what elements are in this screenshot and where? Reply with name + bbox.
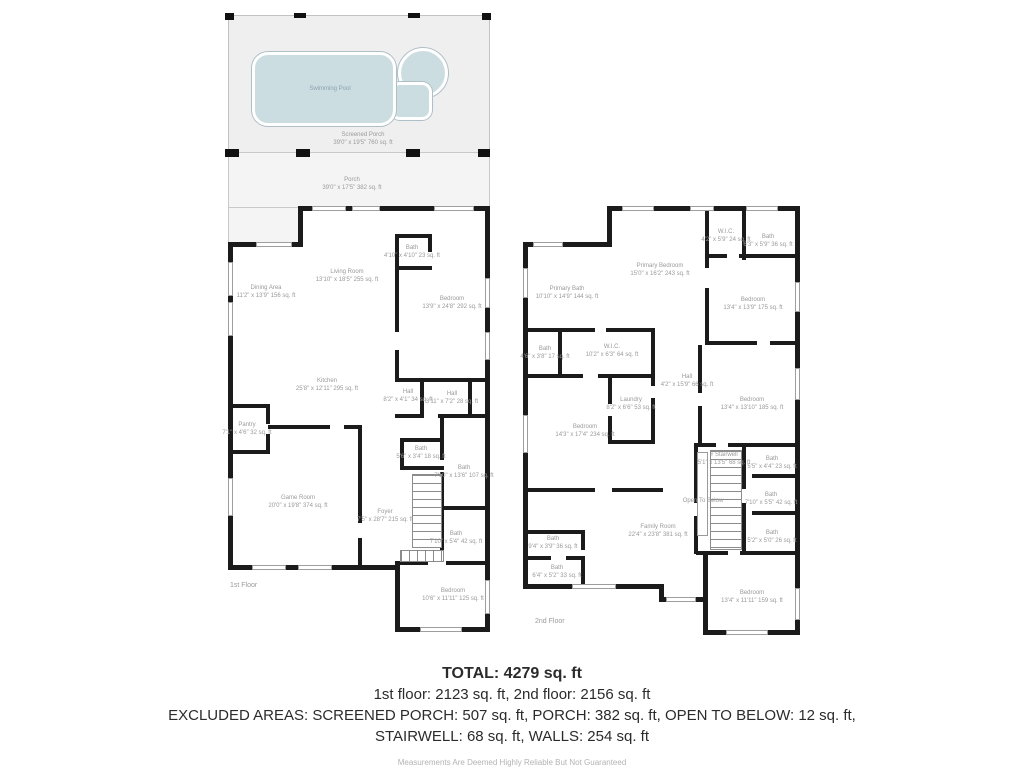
wall bbox=[770, 341, 800, 345]
window bbox=[533, 242, 563, 247]
room-name: Bath bbox=[434, 464, 493, 472]
porch-area-notch bbox=[228, 208, 304, 244]
room-name: Porch bbox=[322, 176, 381, 184]
window bbox=[256, 242, 292, 247]
wall bbox=[523, 374, 583, 378]
room-dims: 7'1" x 4'6" 32 sq. ft bbox=[222, 429, 271, 437]
room-dims: 4'6" x 3'8" 17 sq. ft bbox=[520, 353, 569, 361]
window bbox=[228, 478, 233, 516]
room-label-bedroom: Bedroom13'4" x 13'9" 175 sq. ft bbox=[723, 296, 782, 312]
room-dims: 10'6" x 11'11" 125 sq. ft bbox=[422, 595, 484, 603]
room-label-foyer: Foyer7'5" x 28'7" 215 sq. ft bbox=[357, 508, 413, 524]
room-dims: 10'10" x 14'9" 144 sq. ft bbox=[536, 293, 599, 301]
wall bbox=[795, 206, 800, 635]
room-dims: 5'2" x 5'0" 26 sq. ft bbox=[747, 537, 796, 545]
room-label-bath: Bath7'10" x 5'4" 42 sq. ft bbox=[430, 530, 483, 546]
room-dims: 7'10" x 5'5" 42 sq. ft bbox=[745, 499, 798, 507]
room-name: Pantry bbox=[222, 421, 271, 429]
porch-post bbox=[482, 13, 491, 20]
staircase-landing bbox=[400, 550, 444, 562]
room-dims: 11'2" x 13'9" 156 sq. ft bbox=[237, 292, 296, 300]
room-label-bedroom: Bedroom14'3" x 17'4" 234 sq. ft bbox=[555, 423, 614, 439]
room-dims: 3'11" x 7'2" 28 sq. ft bbox=[426, 398, 478, 406]
wall bbox=[395, 234, 432, 238]
room-label-bath: Bath6'3" x 5'9" 36 sq. ft bbox=[743, 233, 792, 249]
window bbox=[746, 206, 778, 211]
wall bbox=[728, 443, 800, 447]
room-dims: 39'0" x 17'5" 382 sq. ft bbox=[322, 184, 381, 192]
room-name: Bedroom bbox=[721, 589, 783, 597]
wall bbox=[446, 561, 490, 565]
room-name: Bath bbox=[396, 445, 445, 453]
wall bbox=[523, 488, 595, 492]
room-dims: 7'10" x 5'4" 42 sq. ft bbox=[430, 538, 483, 546]
room-label-bath: Bath9'4" x 3'9" 36 sq. ft bbox=[528, 535, 577, 551]
window bbox=[795, 282, 800, 312]
wall bbox=[698, 406, 702, 446]
room-label-dining-area: Dining Area11'2" x 13'9" 156 sq. ft bbox=[237, 284, 296, 300]
porch-post bbox=[225, 149, 239, 157]
wall bbox=[395, 414, 423, 418]
room-label-bath: Bath4'10" x 4'10" 23 sq. ft bbox=[384, 244, 440, 260]
porch-post bbox=[225, 13, 234, 20]
room-label-living-room: Living Room13'10" x 18'5" 255 sq. ft bbox=[316, 268, 379, 284]
room-name: ↑ Stairwell bbox=[698, 451, 751, 459]
room-label-wic: W.I.C.10'2" x 6'3" 64 sq. ft bbox=[586, 343, 639, 359]
room-name: Bath bbox=[747, 529, 796, 537]
excluded-areas-line2: STAIRWELL: 68 sq. ft, WALLS: 254 sq. ft bbox=[0, 728, 1024, 746]
wall bbox=[705, 341, 757, 345]
room-name: W.I.C. bbox=[586, 343, 639, 351]
room-label-bath: Bath5'6" x 3'4" 18 sq. ft bbox=[396, 445, 445, 461]
room-name: Hall bbox=[426, 390, 478, 398]
room-dims: 4'10" x 4'10" 23 sq. ft bbox=[384, 252, 440, 260]
room-name: Bath bbox=[520, 345, 569, 353]
room-name: Primary Bath bbox=[536, 285, 599, 293]
window bbox=[690, 206, 714, 211]
wall bbox=[612, 488, 663, 492]
window bbox=[485, 332, 490, 360]
window bbox=[352, 206, 380, 211]
room-name: Foyer bbox=[357, 508, 413, 516]
window bbox=[228, 302, 233, 336]
room-label-bath: Bath4'6" x 3'8" 17 sq. ft bbox=[520, 345, 569, 361]
room-label-family-room: Family Room22'4" x 23'8" 381 sq. ft bbox=[628, 523, 687, 539]
room-dims: 22'4" x 23'8" 381 sq. ft bbox=[628, 531, 687, 539]
wall bbox=[752, 511, 798, 515]
wall bbox=[400, 438, 444, 442]
room-name: Open To Below bbox=[683, 497, 724, 505]
wall bbox=[298, 206, 303, 247]
room-label-bath: Bath7'10" x 13'6" 107 sq. ft bbox=[434, 464, 493, 480]
room-label-bath: Bath5'2" x 5'0" 26 sq. ft bbox=[747, 529, 796, 545]
room-label-primary-bedroom: Primary Bedroom15'0" x 16'2" 243 sq. ft bbox=[630, 262, 689, 278]
wall bbox=[607, 206, 612, 247]
room-dims: 13'9" x 24'8" 292 sq. ft bbox=[422, 303, 481, 311]
room-label-stairwell: ↑ Stairwell5'1" x 13'5" 68 sq. ft bbox=[698, 451, 751, 467]
up-arrow-icon: ↑ bbox=[710, 452, 713, 458]
screened-porch-label: Screened Porch 39'0" x 19'5" 760 sq. ft bbox=[333, 131, 392, 147]
room-name: Bedroom bbox=[422, 587, 484, 595]
room-dims: 10'2" x 6'3" 64 sq. ft bbox=[586, 351, 639, 359]
room-dims: 5'5" x 4'4" 23 sq. ft bbox=[747, 463, 796, 471]
porch-label: Porch 39'0" x 17'5" 382 sq. ft bbox=[322, 176, 381, 192]
room-label-kitchen: Kitchen25'8" x 12'11" 295 sq. ft bbox=[296, 377, 358, 393]
porch-post bbox=[406, 149, 420, 157]
room-label-pantry: Pantry7'1" x 4'6" 32 sq. ft bbox=[222, 421, 271, 437]
room-name: Bath bbox=[747, 455, 796, 463]
window bbox=[666, 597, 696, 602]
room-name: Hall bbox=[661, 373, 714, 381]
window bbox=[523, 268, 528, 298]
wall bbox=[696, 551, 728, 555]
window bbox=[795, 368, 800, 400]
window bbox=[726, 630, 768, 635]
room-label-bedroom: Bedroom13'9" x 24'8" 292 sq. ft bbox=[422, 295, 481, 311]
window bbox=[485, 278, 490, 308]
room-label-hall: Hall4'2" x 15'9" 66 sq. ft bbox=[661, 373, 714, 389]
room-dims: 25'8" x 12'11" 295 sq. ft bbox=[296, 385, 358, 393]
room-name: Bath bbox=[745, 491, 798, 499]
stairwell-name: Stairwell bbox=[715, 452, 738, 458]
wall bbox=[752, 474, 798, 478]
room-label-bath: Bath5'5" x 4'4" 23 sq. ft bbox=[747, 455, 796, 471]
wall bbox=[696, 443, 716, 447]
room-dims: 7'5" x 28'7" 215 sq. ft bbox=[357, 516, 413, 524]
porch-post bbox=[408, 13, 420, 18]
wall bbox=[228, 450, 270, 454]
room-name: Bath bbox=[384, 244, 440, 252]
room-name: Family Room bbox=[628, 523, 687, 531]
room-dims: 13'4" x 11'11" 159 sq. ft bbox=[721, 597, 783, 605]
wall bbox=[358, 538, 362, 568]
room-name: Bath bbox=[532, 564, 581, 572]
wall bbox=[705, 288, 709, 345]
wall bbox=[485, 206, 490, 632]
wall bbox=[598, 374, 655, 378]
room-name: Screened Porch bbox=[333, 131, 392, 139]
wall bbox=[344, 425, 362, 429]
floor1-caption: 1st Floor bbox=[230, 582, 257, 589]
room-name: Primary Bedroom bbox=[630, 262, 689, 270]
room-name: Bedroom bbox=[721, 396, 784, 404]
room-name: Laundry bbox=[606, 396, 655, 404]
porch-post bbox=[296, 149, 310, 157]
room-label-bedroom: Bedroom13'4" x 13'10" 185 sq. ft bbox=[721, 396, 784, 412]
wall bbox=[703, 553, 708, 635]
wall bbox=[395, 378, 490, 382]
room-dims: 5'6" x 3'4" 18 sq. ft bbox=[396, 453, 445, 461]
room-label-hall: Hall3'11" x 7'2" 28 sq. ft bbox=[426, 390, 478, 406]
room-dims: 6'3" x 5'9" 36 sq. ft bbox=[743, 241, 792, 249]
window bbox=[312, 206, 346, 211]
room-dims: 39'0" x 19'5" 760 sq. ft bbox=[333, 139, 392, 147]
room-name: Game Room bbox=[268, 494, 327, 502]
wall bbox=[739, 254, 800, 258]
window bbox=[228, 262, 233, 296]
floor-plan-sheet: Swimming Pool Screened Porch 39'0" x 19'… bbox=[0, 0, 1024, 768]
porch-post bbox=[478, 149, 490, 157]
room-name: Dining Area bbox=[237, 284, 296, 292]
window bbox=[298, 565, 332, 570]
window bbox=[795, 588, 800, 620]
porch-post bbox=[294, 13, 306, 18]
disclaimer: Measurements Are Deemed Highly Reliable … bbox=[0, 758, 1024, 767]
room-name: Living Room bbox=[316, 268, 379, 276]
room-dims: 8'2" x 6'6" 53 sq. ft bbox=[606, 404, 655, 412]
wall bbox=[523, 556, 551, 560]
window bbox=[572, 584, 616, 589]
area-summary: TOTAL: 4279 sq. ft 1st floor: 2123 sq. f… bbox=[0, 664, 1024, 767]
wall bbox=[438, 414, 490, 418]
wall bbox=[395, 266, 432, 270]
room-name: Kitchen bbox=[296, 377, 358, 385]
swimming-pool-lobe bbox=[390, 82, 432, 120]
wall bbox=[608, 440, 655, 444]
room-name: Bath bbox=[528, 535, 577, 543]
window bbox=[523, 415, 528, 453]
floor-areas: 1st floor: 2123 sq. ft, 2nd floor: 2156 … bbox=[0, 686, 1024, 704]
room-dims: 6'4" x 5'2" 33 sq. ft bbox=[532, 572, 581, 580]
wall bbox=[442, 506, 490, 510]
room-dims: 9'4" x 3'9" 36 sq. ft bbox=[528, 543, 577, 551]
room-label-laundry: Laundry8'2" x 6'6" 53 sq. ft bbox=[606, 396, 655, 412]
window bbox=[485, 580, 490, 614]
room-dims: 14'3" x 17'4" 234 sq. ft bbox=[555, 431, 614, 439]
pool-label: Swimming Pool bbox=[309, 85, 350, 93]
room-dims: 7'10" x 13'6" 107 sq. ft bbox=[434, 472, 493, 480]
wall bbox=[395, 350, 399, 380]
window bbox=[434, 206, 474, 211]
wall bbox=[268, 425, 330, 429]
room-name: Bedroom bbox=[555, 423, 614, 431]
window bbox=[252, 565, 286, 570]
room-name: Bath bbox=[430, 530, 483, 538]
room-dims: 20'0" x 19'8" 374 sq. ft bbox=[268, 502, 327, 510]
wall bbox=[651, 328, 655, 386]
room-dims: 13'10" x 18'5" 255 sq. ft bbox=[316, 276, 379, 284]
total-area: TOTAL: 4279 sq. ft bbox=[0, 664, 1024, 683]
room-dims: 13'4" x 13'10" 185 sq. ft bbox=[721, 404, 784, 412]
room-label-game-room: Game Room20'0" x 19'8" 374 sq. ft bbox=[268, 494, 327, 510]
wall bbox=[705, 254, 727, 258]
wall bbox=[395, 565, 400, 632]
room-label-primary-bath: Primary Bath10'10" x 14'9" 144 sq. ft bbox=[536, 285, 599, 301]
room-label-bath: Bath6'4" x 5'2" 33 sq. ft bbox=[532, 564, 581, 580]
room-label-bath: Bath7'10" x 5'5" 42 sq. ft bbox=[745, 491, 798, 507]
window bbox=[420, 627, 462, 632]
wall bbox=[606, 328, 655, 332]
room-dims: 15'0" x 16'2" 243 sq. ft bbox=[630, 270, 689, 278]
wall bbox=[228, 404, 270, 408]
wall bbox=[742, 503, 746, 555]
wall bbox=[523, 530, 585, 534]
wall bbox=[581, 530, 585, 550]
excluded-areas-line1: EXCLUDED AREAS: SCREENED PORCH: 507 sq. … bbox=[0, 707, 1024, 725]
room-dims: 5'1" x 13'5" 68 sq. ft bbox=[698, 459, 751, 467]
room-label-bedroom: Bedroom10'6" x 11'11" 125 sq. ft bbox=[422, 587, 484, 603]
room-name: Bedroom bbox=[422, 295, 481, 303]
room-dims: 13'4" x 13'9" 175 sq. ft bbox=[723, 304, 782, 312]
room-name: Bath bbox=[743, 233, 792, 241]
room-dims: 4'2" x 15'9" 66 sq. ft bbox=[661, 381, 714, 389]
floor2-caption: 2nd Floor bbox=[535, 618, 565, 625]
wall bbox=[740, 551, 800, 555]
room-label-open-to-below: Open To Below bbox=[683, 497, 724, 505]
window bbox=[622, 206, 654, 211]
pool-name: Swimming Pool bbox=[309, 85, 350, 93]
room-label-bedroom: Bedroom13'4" x 11'11" 159 sq. ft bbox=[721, 589, 783, 605]
room-name: Bedroom bbox=[723, 296, 782, 304]
